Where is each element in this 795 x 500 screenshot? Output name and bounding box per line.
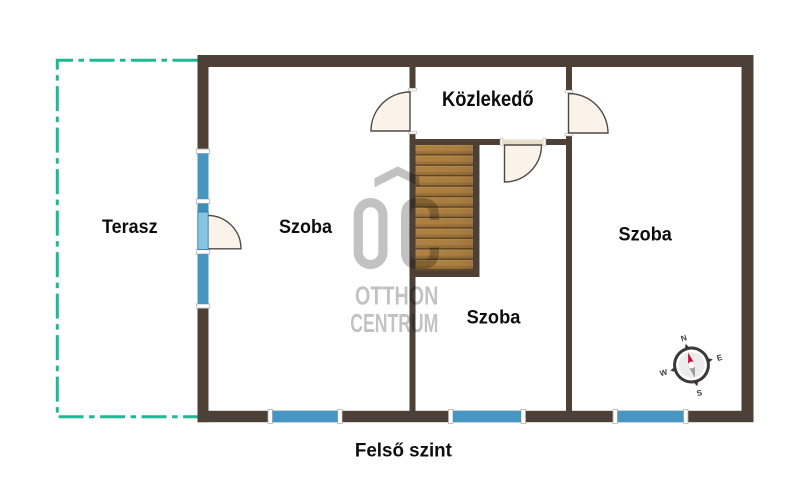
- svg-text:Szoba: Szoba: [619, 224, 672, 246]
- svg-text:CENTRUM: CENTRUM: [350, 310, 438, 338]
- svg-text:N: N: [680, 333, 688, 343]
- svg-text:E: E: [716, 353, 724, 363]
- svg-text:Terasz: Terasz: [102, 216, 158, 238]
- svg-text:Felső szint: Felső szint: [355, 440, 453, 461]
- svg-text:S: S: [696, 388, 704, 398]
- svg-text:W: W: [659, 367, 669, 378]
- svg-text:OTTHON: OTTHON: [355, 282, 439, 310]
- svg-text:Szoba: Szoba: [279, 216, 332, 238]
- svg-text:Közlekedő: Közlekedő: [442, 88, 534, 111]
- svg-text:Szoba: Szoba: [467, 307, 521, 329]
